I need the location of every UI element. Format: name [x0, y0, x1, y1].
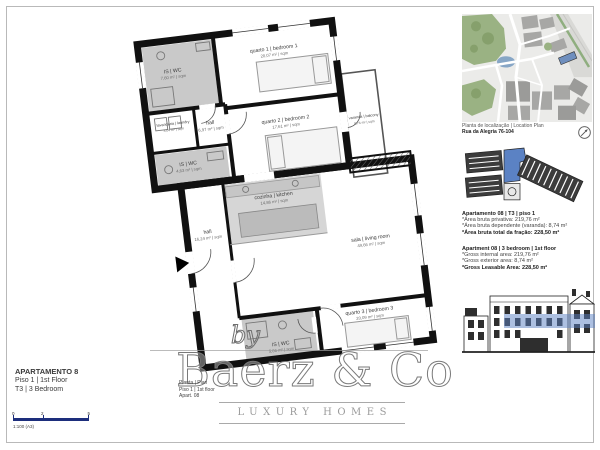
- room-area-label: 6,97 m² | sqm: [198, 125, 224, 133]
- location-map-drawing: [462, 14, 592, 122]
- room-area-label: 16,24 m² | sqm: [194, 234, 223, 242]
- elevation-drawing: [462, 286, 595, 358]
- key-plan-drawing: [464, 147, 590, 208]
- map-address: Rua da Alegria 76-104: [462, 129, 514, 135]
- areas-pt-line: *Área bruta dependente (varanda): 8,74 m…: [462, 223, 567, 229]
- plan-caption-line: Apart. 08: [179, 393, 215, 400]
- compass-icon: [577, 125, 592, 140]
- watermark-tagline: LUXURY HOMES: [219, 402, 405, 424]
- plan-sheet: APARTAMENTO 8 Piso 1 | 1st Floor T3 | 3 …: [0, 0, 600, 450]
- type-line: T3 | 3 Bedroom: [15, 385, 78, 394]
- scale-bar-labels: 0 2 5: [13, 411, 89, 417]
- areas-pt-total: *Área bruta total da fração: 228,50 m²: [462, 230, 567, 236]
- scale-bar-tick: [43, 415, 44, 421]
- room-area-label: 3,04 m² | sqm: [163, 126, 184, 133]
- areas-pt: Apartamento 08 | T3 | piso 1 *Área bruta…: [462, 211, 567, 236]
- scale-bar-tick: [13, 415, 14, 421]
- plan-caption: Planta | Plan Piso 1 | 1st floor Apart. …: [179, 380, 215, 400]
- areas-en-total: *Gross Leasable Area: 228,50 m²: [462, 265, 556, 271]
- room-label: lavandaria | laundry: [156, 120, 189, 128]
- scale-bar-tick: [88, 415, 89, 421]
- key-plan: [464, 147, 590, 208]
- scale-ratio: 1:100 (A3): [13, 424, 89, 429]
- areas-en: Apartment 08 | 3 bedroom | 1st floor *Gr…: [462, 246, 556, 271]
- location-map: [462, 14, 592, 122]
- apartment-title: APARTAMENTO 8: [15, 367, 78, 376]
- scale-bar: 0 2 5 1:100 (A3): [13, 411, 89, 429]
- floor-line: Piso 1 | 1st Floor: [15, 376, 78, 385]
- floor-highlight-band: [504, 314, 595, 328]
- title-block: APARTAMENTO 8 Piso 1 | 1st Floor T3 | 3 …: [15, 367, 78, 394]
- scale-bar-line: [13, 418, 89, 421]
